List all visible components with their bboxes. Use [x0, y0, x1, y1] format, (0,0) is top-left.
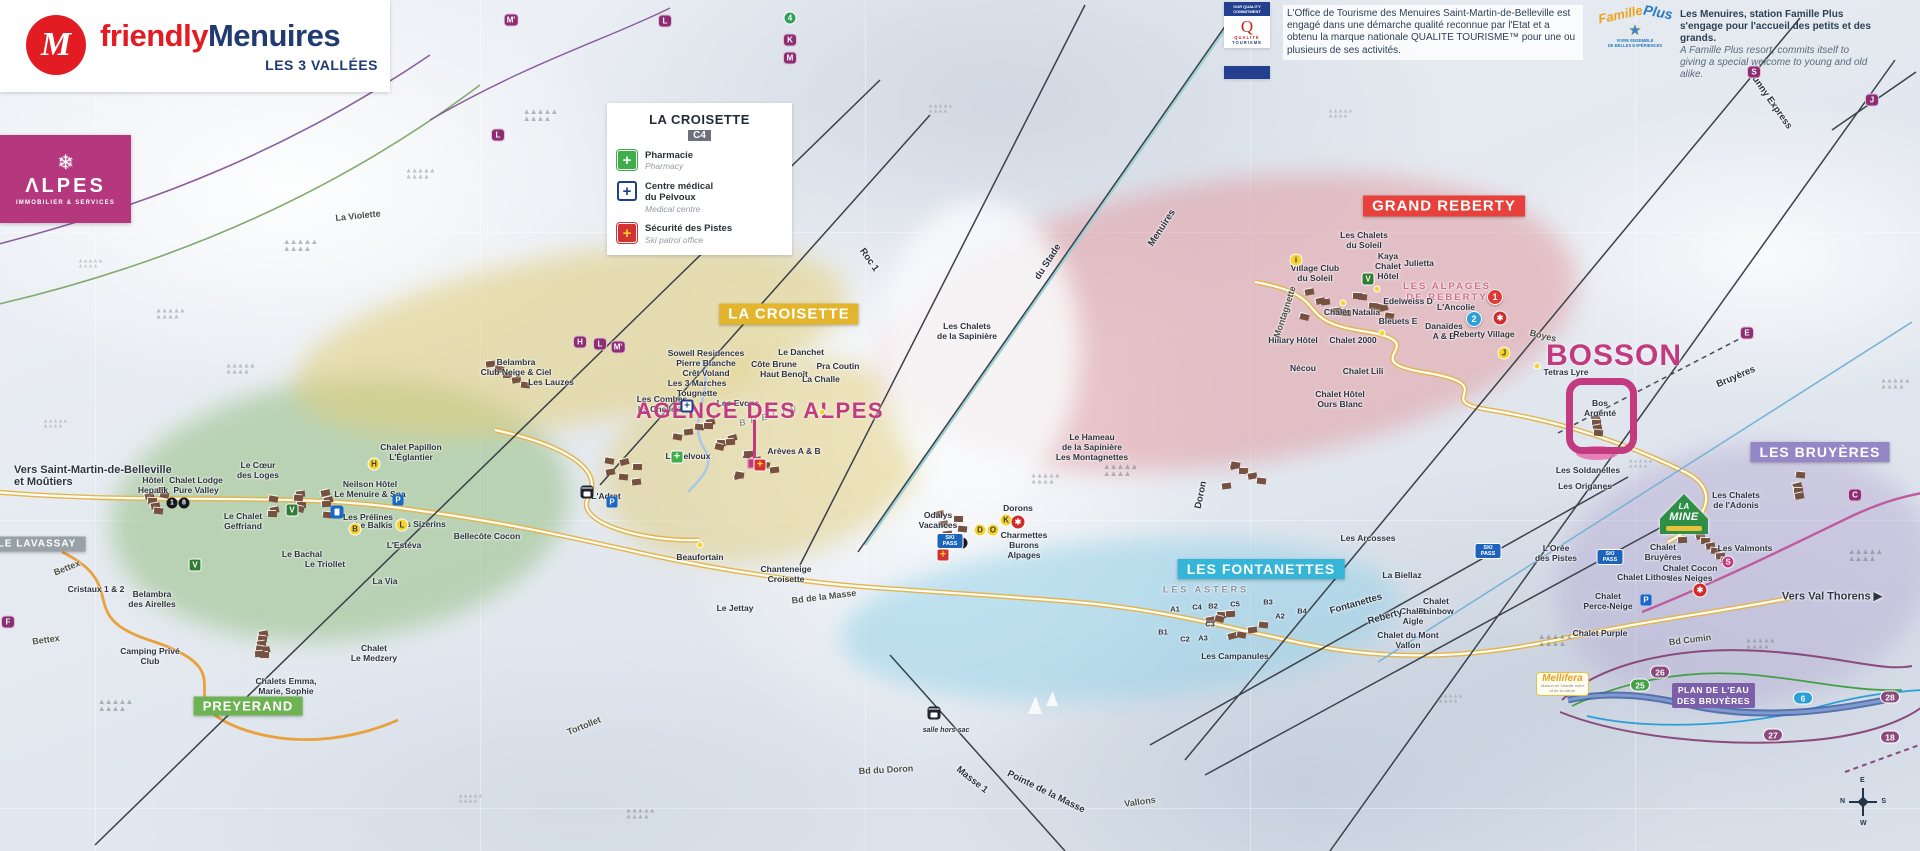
- map-legend: LA CROISETTE C4 + Pharmacie Pharmacy + C…: [607, 103, 792, 255]
- lift-pill-badge: J: [1865, 94, 1879, 107]
- red-logo-icon: ✱: [1011, 515, 1026, 530]
- famille-plus-text: Les Menuires, station Famille Plus s'eng…: [1680, 9, 1878, 81]
- lift-pill-badge: H: [573, 336, 587, 349]
- compass-center: [1857, 796, 1868, 807]
- plan-de-leau-label: PLAN DE L'EAU DES BRUYÈRES: [1672, 683, 1755, 708]
- lift-pill-badge: K: [783, 34, 797, 47]
- lift-pill-badge: C: [1848, 489, 1862, 502]
- red-logo-icon: ✱: [1493, 311, 1508, 326]
- famille-plus-text-en: A Famille Plus resort, commits itself to…: [1680, 45, 1878, 81]
- trail-number-badge: 26: [1650, 666, 1670, 679]
- yellow-circle-badge: H: [368, 458, 381, 471]
- resort-brand-card: M friendlyMenuires LES 3 VALLÉES: [0, 0, 390, 92]
- famille-plus-star-icon: ★: [1597, 24, 1673, 38]
- compass-rose: E S W N: [1845, 784, 1881, 820]
- legend-item-ski-patrol: + Sécurité des Pistes Ski patrol office: [617, 223, 782, 245]
- medical-centre-icon: +: [681, 400, 694, 413]
- lift-pill-badge: M': [611, 341, 626, 354]
- trail-number-badge: 28: [1880, 691, 1900, 704]
- compass-east: E: [1860, 777, 1865, 784]
- legend-item-pharmacy: + Pharmacie Pharmacy: [617, 150, 782, 172]
- bus-stop-badge: 1: [167, 498, 178, 509]
- quality-commitment-banner: OUR QUALITY COMMITMENT: [1224, 2, 1270, 16]
- poi-dot: [1379, 330, 1386, 337]
- trail-number-badge: 18: [1880, 731, 1900, 744]
- menuires-m-logo-icon: M: [26, 15, 86, 75]
- medical-cross-icon: +: [617, 181, 637, 201]
- mellifera-badge: Mellifera Maison de l'abeille noire et d…: [1536, 672, 1589, 696]
- legend-title: LA CROISETTE: [617, 112, 782, 127]
- lift-pill-badge: L: [491, 129, 505, 142]
- legend-grid-code: C4: [688, 130, 711, 141]
- poi-dot: [819, 409, 826, 416]
- legend-label-fr: Sécurité des Pistes: [645, 223, 732, 234]
- compass-north: N: [1840, 798, 1845, 805]
- legend-label-fr: Pharmacie: [645, 150, 693, 161]
- trail-number-badge: 27: [1763, 729, 1783, 742]
- ski-patrol-cross-icon: +: [617, 223, 637, 243]
- compass-south: S: [1881, 798, 1886, 805]
- la-mine-text-a: LA: [1660, 502, 1708, 511]
- ski-pass-badge: SKI PASS: [1475, 543, 1502, 559]
- famille-plus-logo: FamillePlus ★ VIVRE ENSEMBLE DE BELLES E…: [1597, 6, 1673, 64]
- gondola-station-icon: [581, 486, 594, 499]
- trail-number-badge: 6: [1793, 692, 1813, 705]
- alpes-snowflake-icon: ❄: [57, 153, 74, 173]
- trail-number-badge: 25: [1630, 679, 1650, 692]
- lift-pill-badge: E: [1740, 327, 1754, 340]
- parking-icon: P: [607, 497, 618, 508]
- green-v-badge: V: [189, 559, 202, 572]
- green-circle-badge: 4: [784, 12, 797, 25]
- magenta-circle-badge: S: [1722, 556, 1735, 569]
- poi-dot: [697, 542, 704, 549]
- map-badges-layer: M'L4KMLHLM'EJSFCDOKHBLJi1831226272818256…: [0, 0, 1920, 851]
- qualite-tourisme-q-icon: Q: [1224, 18, 1270, 35]
- red-logo-icon: ✱: [1693, 583, 1708, 598]
- alpes-name: ΛLPES: [25, 175, 106, 198]
- tourisme-label: TOURISME: [1224, 40, 1270, 45]
- yellow-circle-badge: J: [1498, 347, 1511, 360]
- lift-pill-badge: M: [783, 52, 797, 65]
- fuel-station-icon: [331, 506, 344, 519]
- yellow-circle-badge: D: [974, 524, 987, 537]
- pharmacy-icon: +: [671, 451, 684, 464]
- famille-plus-text-fr: Les Menuires, station Famille Plus s'eng…: [1680, 9, 1878, 45]
- les-3-vallees-label: LES 3 VALLÉES: [265, 57, 378, 73]
- qualite-tourisme-logo: OUR QUALITY COMMITMENT Q QUALITÉ TOURISM…: [1224, 2, 1270, 48]
- ski-pass-badge: SKI PASS: [1597, 549, 1624, 565]
- pharmacy-cross-icon: +: [617, 150, 637, 170]
- blue-number-badge: 2: [1466, 311, 1482, 327]
- famille-plus-tagline: VIVRE ENSEMBLE DE BELLES EXPÉRIENCES: [1597, 38, 1673, 49]
- mellifera-subtitle: Maison de l'abeille noire et de la natur…: [1541, 684, 1584, 694]
- yellow-circle-badge: i: [1290, 254, 1303, 267]
- lift-pill-badge: M': [504, 14, 519, 27]
- resort-map: ▲▲▲▲▲ ▲▲▲▲▲▲▲▲▲ ▲▲▲▲▲▲▲▲▲ ▲▲▲▲▲▲▲▲▲ ▲▲▲▲…: [0, 0, 1920, 851]
- legend-label-en: Medical centre: [645, 204, 713, 215]
- lift-pill-badge: L: [593, 338, 607, 351]
- la-mine-logo: LA MINE: [1660, 494, 1708, 534]
- brand-friendly: friendly: [100, 18, 208, 53]
- gondola-station-icon: [928, 707, 941, 720]
- qualite-tourisme-footer-strip: [1224, 66, 1270, 79]
- legend-item-medical: + Centre médical du Pelvoux Medical cent…: [617, 181, 782, 214]
- poi-dot: [1340, 300, 1347, 307]
- green-v-badge: V: [1362, 273, 1375, 286]
- la-mine-banner: [1666, 526, 1702, 531]
- la-mine-text-b: MINE: [1660, 511, 1708, 523]
- lift-pill-badge: L: [658, 15, 672, 28]
- brand-menuires: Menuires: [208, 18, 340, 53]
- bus-stop-badge: 8: [179, 498, 190, 509]
- ski-patrol-icon: +: [754, 459, 767, 472]
- red-number-badge: 1: [1487, 289, 1503, 305]
- poi-dot: [1534, 363, 1541, 370]
- compass-west: W: [1860, 820, 1867, 827]
- parking-icon: P: [393, 495, 404, 506]
- legend-label-fr: Centre médical du Pelvoux: [645, 181, 713, 204]
- parking-icon: P: [1641, 595, 1652, 606]
- green-v-badge: V: [286, 504, 299, 517]
- resort-name: friendlyMenuires: [100, 18, 340, 54]
- alpes-subtitle: IMMOBILIER & SERVICES: [16, 200, 115, 206]
- legend-label-en: Ski patrol office: [645, 235, 732, 246]
- yellow-circle-badge: L: [396, 519, 409, 532]
- ski-patrol-icon: +: [937, 549, 950, 562]
- alpes-agency-card: ❄ ΛLPES IMMOBILIER & SERVICES: [0, 135, 131, 223]
- legend-label-en: Pharmacy: [645, 161, 693, 172]
- yellow-circle-badge: B: [349, 523, 362, 536]
- lift-pill-badge: F: [1, 616, 15, 629]
- ski-pass-badge: SKI PASS: [937, 533, 964, 549]
- poi-dot: [1374, 286, 1381, 293]
- yellow-circle-badge: O: [987, 524, 1000, 537]
- tourism-office-text: L'Office de Tourisme des Menuires Saint-…: [1283, 5, 1583, 60]
